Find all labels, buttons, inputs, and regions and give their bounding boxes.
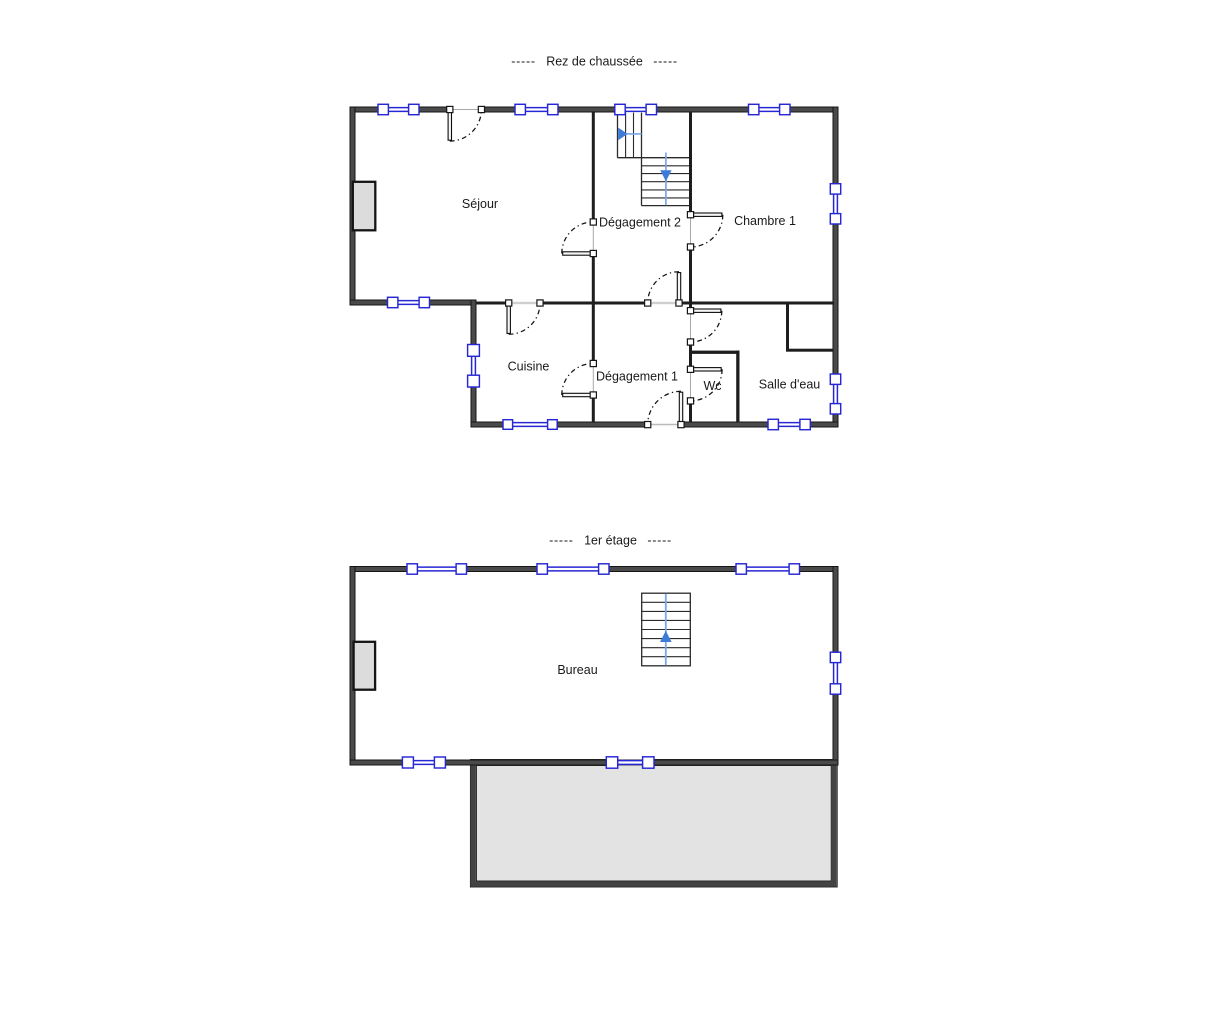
- svg-text:Wc: Wc: [703, 379, 721, 393]
- svg-text:Bureau: Bureau: [557, 663, 597, 677]
- svg-text:Dégagement 1: Dégagement 1: [596, 370, 678, 384]
- svg-text:Séjour: Séjour: [462, 197, 498, 211]
- svg-text:Dégagement 2: Dégagement 2: [599, 216, 681, 230]
- svg-text:Cuisine: Cuisine: [508, 360, 550, 374]
- svg-text:Salle d'eau: Salle d'eau: [759, 378, 821, 392]
- svg-text:----- 1er étage -----: ----- 1er étage -----: [549, 534, 672, 548]
- svg-text:Chambre 1: Chambre 1: [734, 214, 796, 228]
- svg-text:----- Rez de chaussée ----: ----- Rez de chaussée -----: [511, 55, 678, 69]
